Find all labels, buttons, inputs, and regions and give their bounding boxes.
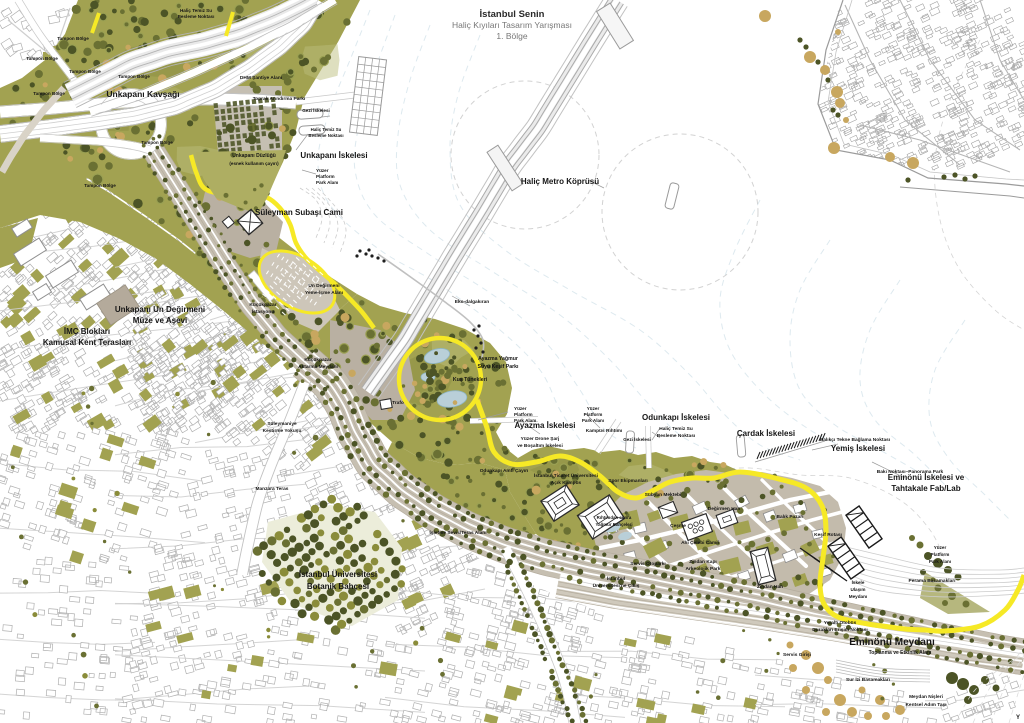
svg-text:Haliç Kıyıları Tasarım Yarışm: Haliç Kıyıları Tasarım Yarışması [452,20,572,30]
svg-text:Rıhtımdan sonra: Rıhtımdan sonra [597,515,632,520]
svg-text:Haliç Temiz Su: Haliç Temiz Su [180,8,212,13]
svg-text:Durakları Erişim Noktası: Durakları Erişim Noktası [812,627,867,633]
svg-text:Unkapanı Düzlüğü: Unkapanı Düzlüğü [232,153,276,159]
svg-text:Botanik Bahçesi: Botanik Bahçesi [307,582,369,591]
svg-text:Toplanma ve Etkinlik Alanı: Toplanma ve Etkinlik Alanı [869,650,932,656]
svg-text:Yüzer: Yüzer [587,406,600,411]
svg-text:İMÇ Blokları: İMÇ Blokları [64,327,110,336]
svg-text:Toprak Arındırma Parkı: Toprak Arındırma Parkı [253,96,306,102]
svg-text:İstanbul Ticaret Üniversitesi: İstanbul Ticaret Üniversitesi [534,472,598,479]
svg-text:Yeme-İçme Alanı: Yeme-İçme Alanı [305,289,343,296]
svg-text:Perama Basamakları: Perama Basamakları [909,578,956,584]
svg-text:Meydanı: Meydanı [849,594,867,599]
svg-text:Kestirme Yokuşu: Kestirme Yokuşu [263,428,302,434]
svg-text:Besleme Noktası: Besleme Noktası [308,133,343,138]
svg-text:1. Bölge: 1. Bölge [496,31,527,41]
svg-text:Süleyman Subaşı Cami: Süleyman Subaşı Cami [255,208,343,217]
svg-text:Gezi İskelesi: Gezi İskelesi [302,107,330,113]
svg-text:Tahtakale Fab/Lab: Tahtakale Fab/Lab [891,484,960,493]
svg-text:(esnek kullanım çayırı): (esnek kullanım çayırı) [229,161,279,166]
svg-text:Tampon Bölge: Tampon Bölge [118,74,150,79]
svg-text:Tampon Bölge: Tampon Bölge [84,183,116,188]
svg-text:Unkapanı İskelesi: Unkapanı İskelesi [300,151,367,160]
svg-text:İstanbul: İstanbul [607,575,625,582]
svg-text:Sur İzi Basamakları: Sur İzi Basamakları [846,676,890,683]
svg-text:Park Alanı: Park Alanı [316,180,338,185]
svg-text:Ayazma İskelesi: Ayazma İskelesi [514,421,575,430]
svg-text:Eko-dalgakıran: Eko-dalgakıran [455,299,489,305]
svg-text:Çeşme: Çeşme [670,523,686,529]
svg-text:Besleme Noktası: Besleme Noktası [178,14,215,19]
svg-text:Park Alanı: Park Alanı [582,418,604,423]
svg-text:Balıkçı Tekne Bağlama Noktası: Balıkçı Tekne Bağlama Noktası [820,437,890,443]
svg-text:Platform: Platform [931,552,950,557]
svg-text:Spor Ekipmanları: Spor Ekipmanları [608,478,647,484]
svg-text:Unkapanı Un Değirmeni: Unkapanı Un Değirmeni [115,305,205,314]
svg-text:Tampon Bölge: Tampon Bölge [141,140,173,145]
svg-text:İşletme Sevis/Teras Alanı: İşletme Sevis/Teras Alanı [429,529,486,536]
svg-text:Haliç Metro Köprüsü: Haliç Metro Köprüsü [521,177,599,186]
svg-text:İstasyonu: İstasyonu [252,308,274,315]
svg-text:Açık Kampüs: Açık Kampüs [551,480,582,486]
svg-text:Meydan Nişleri: Meydan Nişleri [909,694,943,700]
svg-text:Sübyan Mektebi: Sübyan Mektebi [645,492,682,498]
svg-text:Kentsel Adım Taşı: Kentsel Adım Taşı [905,702,946,708]
svg-text:Platform: Platform [514,412,533,417]
svg-text:Küçükpazar: Küçükpazar [249,302,276,308]
svg-text:Gezi İskelesi: Gezi İskelesi [623,436,651,442]
svg-text:Eminönü Meydanı: Eminönü Meydanı [849,637,935,648]
svg-text:Manzara Teras: Manzara Teras [256,486,289,492]
svg-text:Süleymaniye: Süleymaniye [267,421,297,427]
svg-text:Besleme Noktası: Besleme Noktası [657,433,695,439]
svg-text:Platform: Platform [584,412,603,417]
svg-text:Yüzer: Yüzer [316,168,329,173]
svg-text:Yemiş İskelesi: Yemiş İskelesi [831,444,885,453]
svg-text:Tampon Bölge: Tampon Bölge [26,56,58,61]
svg-text:Tampon Bölge: Tampon Bölge [33,91,65,96]
svg-text:Un Değirmeni: Un Değirmeni [308,283,339,289]
svg-text:Çardak İskelesi: Çardak İskelesi [737,429,795,438]
svg-text:Trafo: Trafo [392,400,404,406]
svg-text:DHM Şantiye Alanı: DHM Şantiye Alanı [240,75,282,81]
svg-text:Yeraltı Otobüs: Yeraltı Otobüs [824,620,857,626]
svg-text:Kuş Tünekleri: Kuş Tünekleri [453,377,488,383]
svg-text:Küçükpazar: Küçükpazar [304,357,331,363]
svg-text:Servis Girişi: Servis Girişi [783,652,811,658]
svg-text:Aktarma Meydanı: Aktarma Meydanı [298,364,338,370]
svg-text:Yüzer Drone Şarj: Yüzer Drone Şarj [521,436,560,442]
svg-text:Haliç Temiz Su: Haliç Temiz Su [659,426,693,432]
svg-text:Suyu Keşif Parkı: Suyu Keşif Parkı [478,364,519,370]
svg-text:İstanbul Üniversitesi: İstanbul Üniversitesi [299,570,377,579]
svg-text:Yüzer: Yüzer [934,545,947,550]
svg-text:Kamusal Kent Terasları: Kamusal Kent Terasları [43,338,131,347]
svg-text:Zindan Han: Zindan Han [757,584,783,590]
svg-text:Odunkapı Amfi Çayırı: Odunkapı Amfi Çayırı [480,468,529,474]
svg-text:Haliç Temiz Su: Haliç Temiz Su [311,127,342,132]
svg-text:Y: Y [1016,715,1020,721]
svg-text:Zindan Kapı: Zindan Kapı [689,559,716,565]
svg-text:Yağmur Bahçeleri: Yağmur Bahçeleri [595,522,632,527]
svg-text:İstanbul Senin: İstanbul Senin [480,9,545,20]
svg-text:Müze ve Aşevi: Müze ve Aşevi [133,316,187,325]
svg-text:Odunkapı İskelesi: Odunkapı İskelesi [642,413,710,422]
svg-text:Tampon Bölge: Tampon Bölge [57,36,89,41]
svg-text:ve Boşaltım İskelesi: ve Boşaltım İskelesi [517,442,563,449]
svg-text:Yüzer: Yüzer [514,406,527,411]
svg-text:Balık Pazarı: Balık Pazarı [777,514,804,520]
svg-text:Park Alanı: Park Alanı [929,559,951,564]
svg-text:Ahi Çelebi Camii: Ahi Çelebi Camii [681,540,719,546]
svg-text:Değirmen Han: Değirmen Han [708,506,741,512]
svg-text:Tampon Bölge: Tampon Bölge [69,69,101,74]
svg-text:Üniversitesi'ne Çıkış: Üniversitesi'ne Çıkış [593,582,640,589]
svg-text:Unkapanı Kavşağı: Unkapanı Kavşağı [106,89,179,99]
svg-text:Ayazma Yağmur: Ayazma Yağmur [478,356,518,362]
svg-text:Arkeolojik Park: Arkeolojik Park [686,566,721,572]
svg-text:Servis Otoparkı: Servis Otoparkı [630,561,665,567]
svg-text:Ulaşım: Ulaşım [850,587,865,592]
svg-text:Keşif Rotası: Keşif Rotası [814,532,842,538]
svg-text:Platform: Platform [316,174,335,179]
svg-text:Kampüs Rıhtımı: Kampüs Rıhtımı [586,428,623,434]
svg-text:İskele: İskele [852,579,865,585]
svg-text:Eminönü İskelesi ve: Eminönü İskelesi ve [888,473,965,482]
